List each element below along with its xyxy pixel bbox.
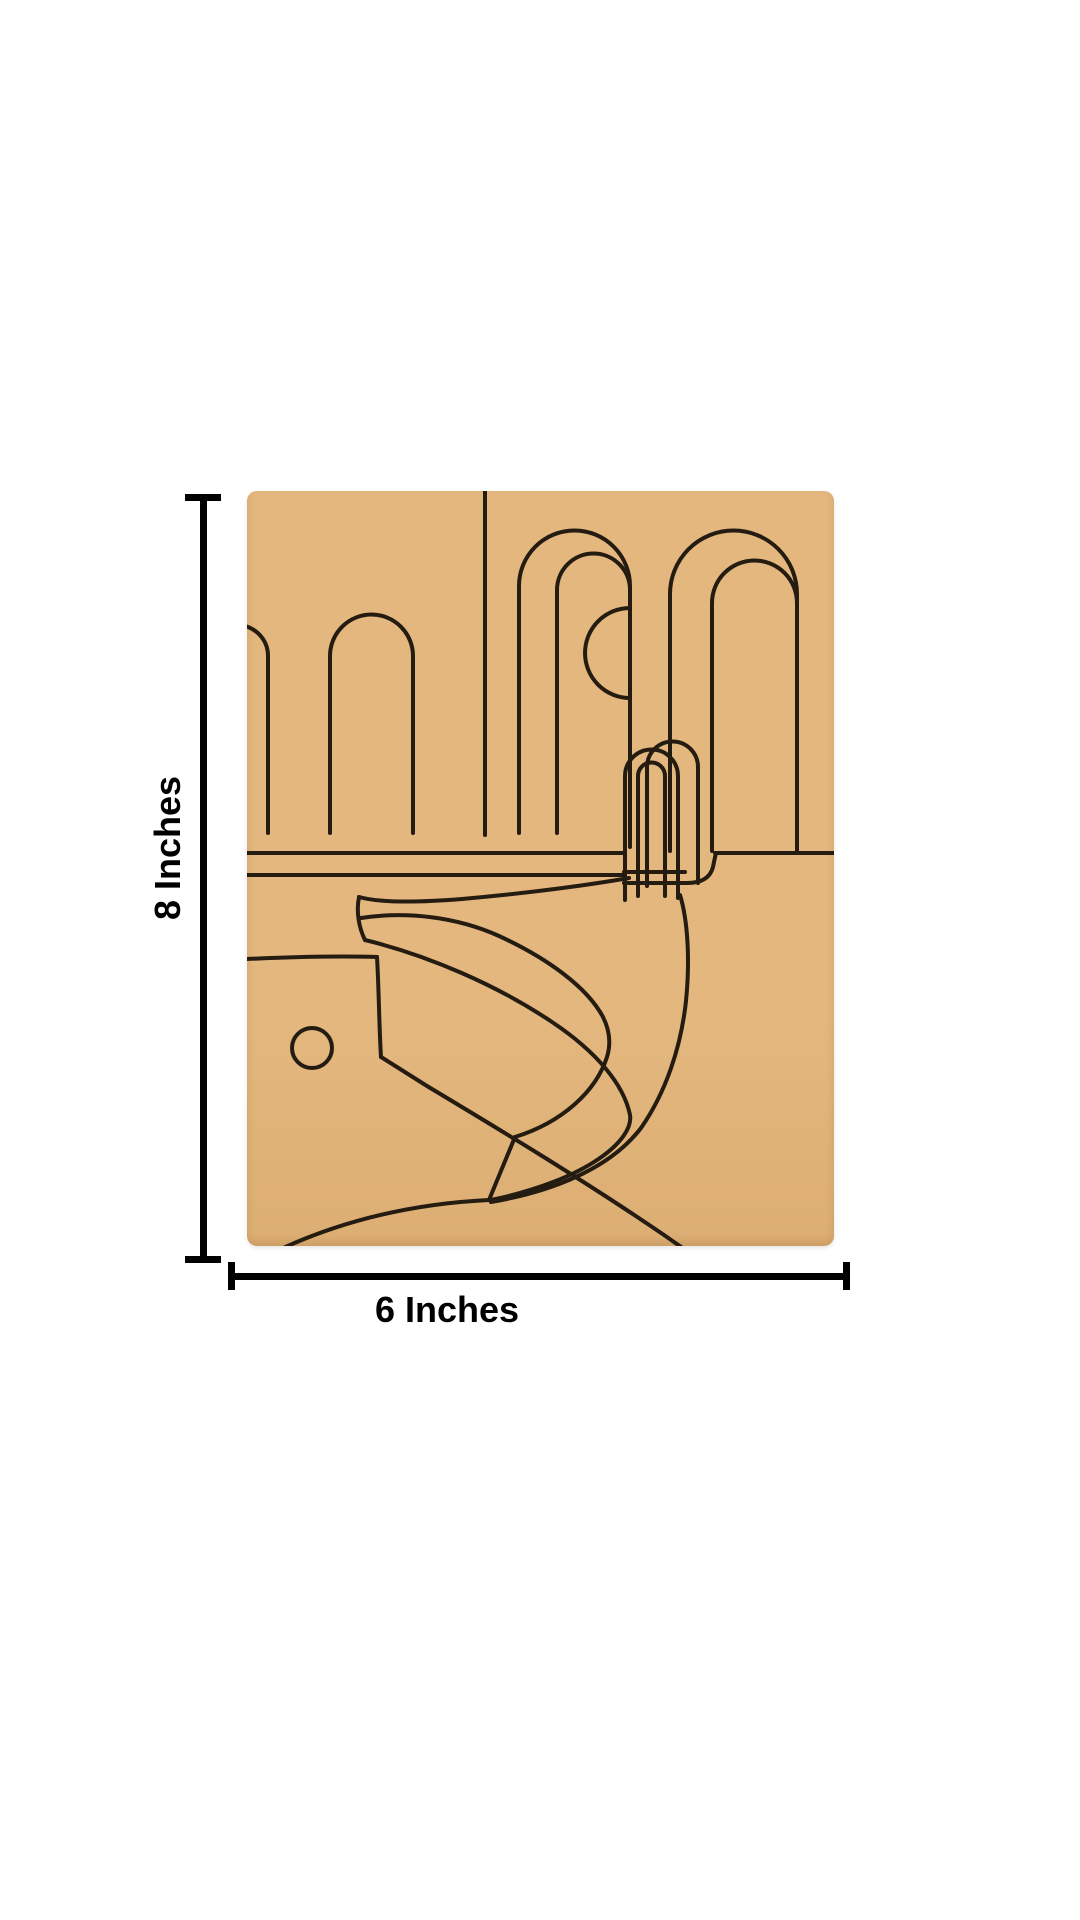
half-sun — [585, 608, 630, 698]
width-dimension-cap-right — [843, 1262, 850, 1290]
height-dimension-cap-top — [185, 494, 221, 501]
height-dimension-cap-bottom — [185, 1256, 221, 1263]
canvas-board — [247, 491, 834, 1246]
arch-second — [330, 615, 413, 833]
deck-foreground — [247, 957, 684, 1246]
pool-edge-lines — [247, 853, 834, 883]
deck-circle — [292, 1028, 332, 1068]
width-label: 6 Inches — [337, 1288, 557, 1332]
pool-ladder — [625, 742, 698, 901]
arch-middle-double — [519, 531, 630, 848]
width-dimension-cap-left — [228, 1262, 235, 1290]
arch-left-partial — [247, 625, 268, 833]
width-dimension-line — [231, 1273, 848, 1280]
height-label: 8 Inches — [146, 738, 190, 958]
slide-path — [358, 878, 688, 1202]
arch-right-double — [670, 531, 797, 851]
line-art-drawing — [247, 491, 834, 1246]
height-dimension-line — [200, 497, 207, 1260]
product-dimension-image: 8 Inches 6 Inches — [0, 0, 1080, 1920]
